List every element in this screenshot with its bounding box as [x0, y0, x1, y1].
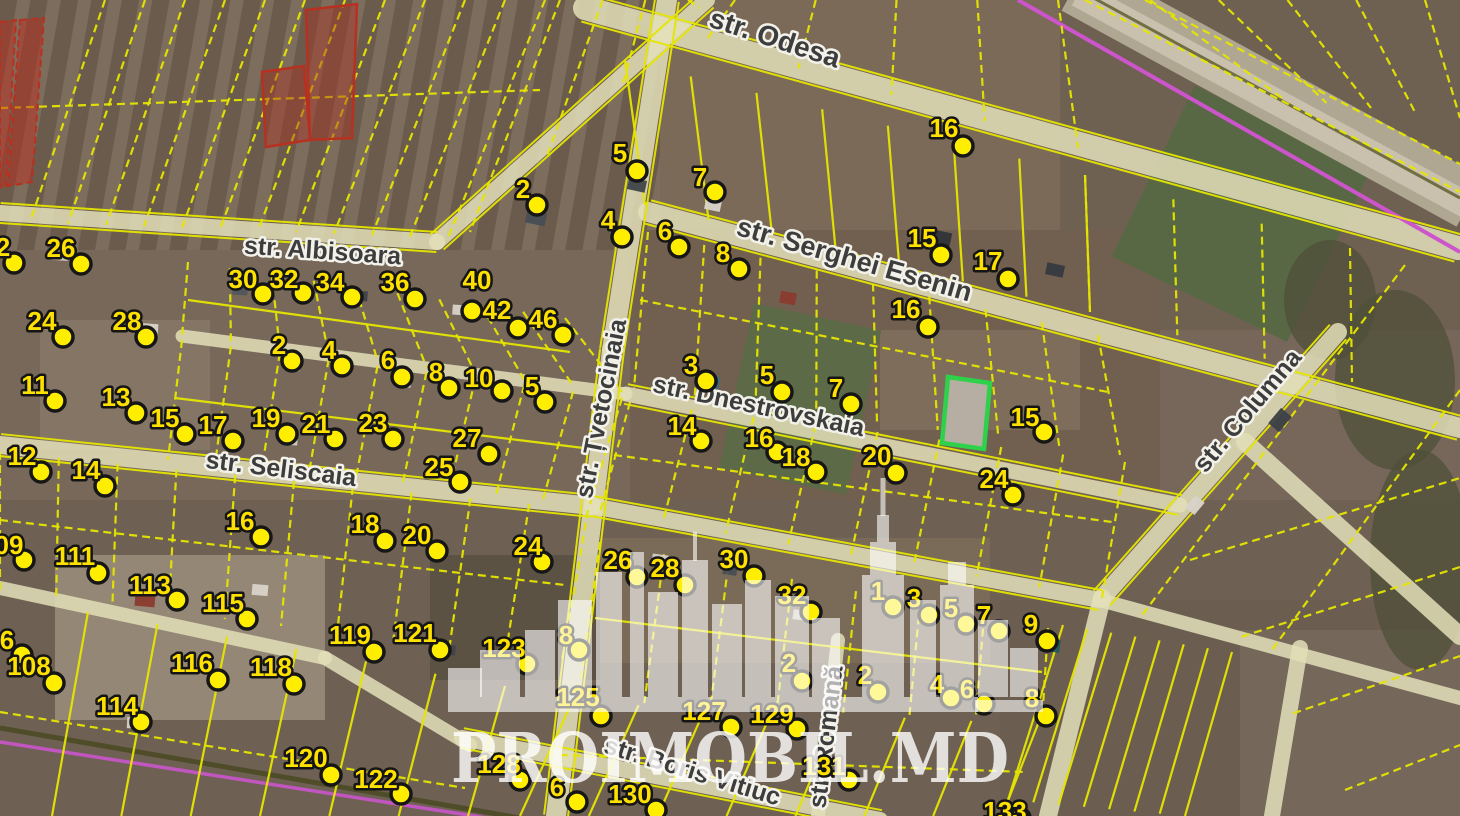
watermark-text: PROIMOBIL.MD — [451, 719, 1009, 799]
svg-text:46: 46 — [529, 304, 558, 334]
svg-text:26: 26 — [604, 545, 633, 575]
svg-text:25: 25 — [425, 452, 454, 482]
svg-text:36: 36 — [381, 267, 410, 297]
svg-text:118: 118 — [250, 652, 292, 682]
svg-text:13: 13 — [102, 382, 131, 412]
svg-text:40: 40 — [463, 265, 492, 295]
svg-text:20: 20 — [403, 520, 432, 550]
svg-text:5: 5 — [525, 371, 539, 401]
svg-text:120: 120 — [284, 743, 327, 773]
svg-text:8: 8 — [716, 238, 730, 268]
svg-text:28: 28 — [113, 306, 142, 336]
svg-text:27: 27 — [453, 423, 482, 453]
svg-text:15: 15 — [151, 403, 180, 433]
svg-text:11: 11 — [21, 370, 49, 400]
svg-text:18: 18 — [351, 509, 380, 539]
svg-text:9: 9 — [1024, 609, 1038, 639]
svg-text:16: 16 — [892, 294, 921, 324]
svg-text:7: 7 — [693, 162, 707, 192]
svg-text:111: 111 — [55, 541, 96, 571]
svg-text:4: 4 — [601, 205, 616, 235]
svg-text:114: 114 — [96, 691, 138, 721]
highlighted-parcel[interactable] — [942, 377, 990, 449]
svg-text:133: 133 — [983, 796, 1026, 816]
svg-text:30: 30 — [720, 544, 749, 574]
svg-text:17: 17 — [974, 246, 1003, 276]
svg-text:15: 15 — [908, 223, 937, 253]
svg-text:121: 121 — [393, 618, 436, 648]
svg-text:24: 24 — [28, 306, 57, 336]
svg-text:24: 24 — [980, 464, 1009, 494]
svg-text:32: 32 — [270, 264, 299, 294]
svg-text:5: 5 — [613, 138, 627, 168]
svg-text:115: 115 — [202, 588, 244, 618]
svg-text:113: 113 — [129, 570, 171, 600]
svg-text:6: 6 — [658, 216, 672, 246]
svg-text:26: 26 — [47, 233, 76, 263]
svg-text:18: 18 — [782, 442, 811, 472]
svg-text:16: 16 — [745, 423, 774, 453]
svg-text:7: 7 — [829, 373, 843, 403]
svg-text:116: 116 — [171, 648, 213, 678]
svg-text:20: 20 — [863, 441, 892, 471]
svg-text:2: 2 — [0, 232, 10, 262]
svg-text:09: 09 — [0, 530, 23, 560]
svg-text:16: 16 — [226, 506, 255, 536]
svg-text:12: 12 — [8, 441, 37, 471]
parcel-marker-133-87[interactable]: 133 — [983, 796, 1030, 816]
svg-text:4: 4 — [322, 335, 337, 365]
svg-text:34: 34 — [316, 267, 345, 297]
svg-text:21: 21 — [302, 409, 331, 439]
svg-text:19: 19 — [252, 403, 281, 433]
svg-text:23: 23 — [359, 408, 388, 438]
svg-text:24: 24 — [514, 531, 543, 561]
svg-text:16: 16 — [930, 113, 959, 143]
svg-text:2: 2 — [516, 174, 530, 204]
svg-text:5: 5 — [760, 360, 774, 390]
svg-text:3: 3 — [684, 350, 698, 380]
map-canvas[interactable]: str. Odesastr. Serghei Eseninstr. Albiso… — [0, 0, 1460, 816]
satellite-map-viewport[interactable]: str. Odesastr. Serghei Eseninstr. Albiso… — [0, 0, 1460, 816]
svg-text:28: 28 — [651, 553, 680, 583]
svg-text:42: 42 — [483, 295, 512, 325]
svg-text:6: 6 — [381, 345, 395, 375]
svg-text:122: 122 — [354, 764, 397, 794]
svg-text:119: 119 — [329, 620, 371, 650]
svg-text:14: 14 — [668, 411, 697, 441]
svg-text:15: 15 — [1011, 402, 1040, 432]
svg-text:30: 30 — [229, 264, 258, 294]
svg-text:17: 17 — [199, 410, 228, 440]
svg-text:10: 10 — [465, 363, 494, 393]
svg-text:108: 108 — [7, 651, 50, 681]
svg-text:8: 8 — [429, 357, 443, 387]
svg-text:14: 14 — [72, 455, 101, 485]
svg-text:2: 2 — [272, 330, 286, 360]
